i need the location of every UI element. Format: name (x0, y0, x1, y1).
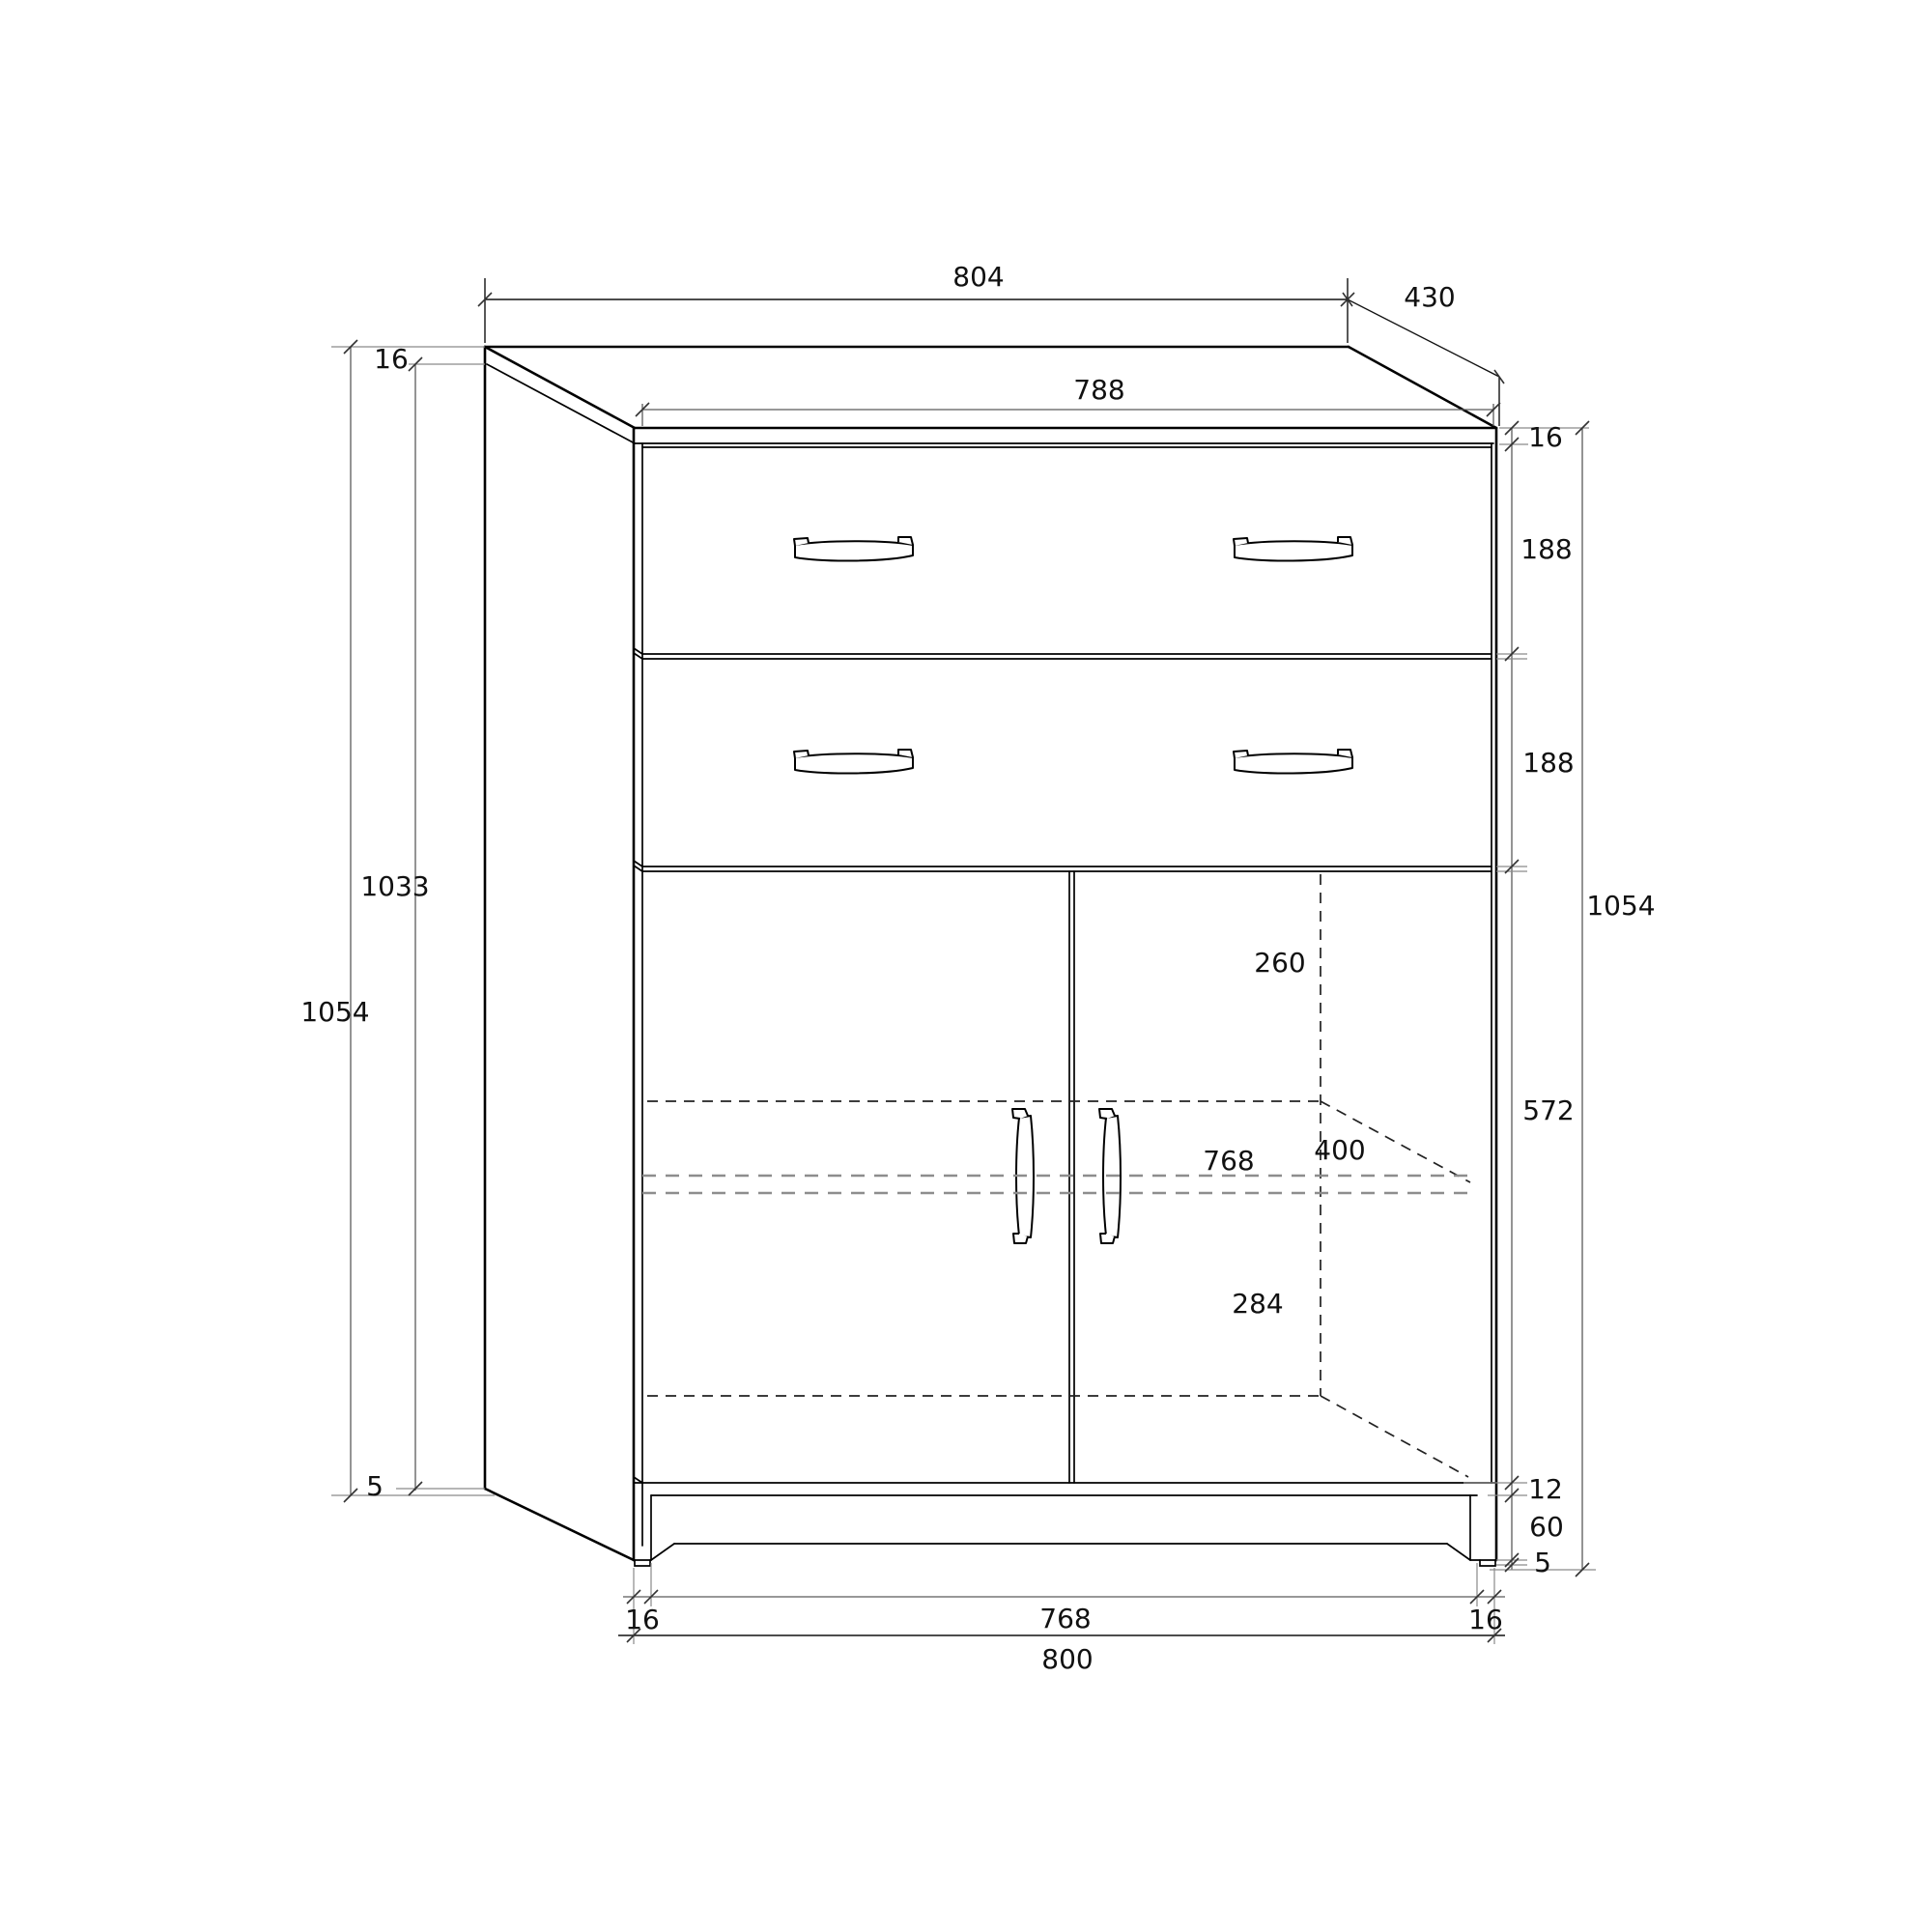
hidden-shelf-lines (642, 874, 1470, 1477)
dim-label-base-width: 800 (1041, 1643, 1093, 1675)
dim-label-side-panel-height: 1033 (360, 870, 429, 902)
bottom-right-depth-edge (1321, 1396, 1468, 1477)
dim-label-glide-right: 5 (1534, 1547, 1551, 1578)
dim-label-side-thickness-bottom-left: 16 (625, 1604, 660, 1635)
dimension-lines (331, 278, 1596, 1644)
dim-label-interior-width-bottom: 768 (1039, 1603, 1091, 1634)
glide-front-left (635, 1560, 650, 1566)
dim-label-top-thickness-left: 16 (374, 343, 409, 375)
dim-label-door-section-height: 572 (1522, 1094, 1574, 1126)
dim-label-side-thickness-bottom-right: 16 (1468, 1604, 1503, 1635)
drawer1-right-handle (1234, 537, 1352, 561)
dim-label-space-above-shelf: 260 (1254, 947, 1305, 979)
dim-label-depth: 430 (1404, 281, 1455, 313)
dim-label-drawer2-height: 188 (1522, 747, 1574, 779)
cabinet-technical-drawing: 804 430 788 16 188 188 1054 572 12 60 5 … (0, 0, 1932, 1932)
dim-label-drawer1-height: 188 (1520, 533, 1572, 565)
handles (794, 537, 1352, 1243)
top-panel-left-depth-edge (485, 347, 635, 428)
dim-label-top-thickness-right: 16 (1528, 421, 1563, 453)
drawer-divider-1 (634, 648, 1492, 659)
drawer2-right-handle (1234, 750, 1352, 774)
doors-bottom-left-connector (634, 1477, 642, 1483)
top-panel-right-depth-edge (1349, 347, 1496, 428)
side-panel-bottom-edge (485, 1489, 634, 1560)
drawer-divider-2 (634, 861, 1492, 871)
dim-label-space-below-shelf: 284 (1232, 1288, 1283, 1320)
dim-label-height-right: 1054 (1586, 890, 1655, 922)
drawing-page: 804 430 788 16 188 188 1054 572 12 60 5 … (0, 0, 1932, 1932)
drawer2-left-handle (794, 750, 913, 774)
dim-label-glide-left: 5 (366, 1470, 384, 1502)
dimension-end-marks (344, 293, 1589, 1642)
plinth (634, 1495, 1496, 1560)
dim-label-shelf-depth: 400 (1314, 1134, 1365, 1166)
dim-label-front-inner-width: 788 (1073, 374, 1124, 406)
dim-label-bottom-panel: 12 (1528, 1473, 1563, 1505)
drawer1-left-handle (794, 537, 913, 561)
cabinet-outline (485, 347, 1496, 1566)
dim-label-height-left: 1054 (300, 996, 369, 1028)
glide-front-right (1480, 1560, 1495, 1566)
dim-label-plinth-height: 60 (1529, 1511, 1564, 1543)
top-panel-left-underside-edge (487, 364, 635, 443)
dimension-labels: 804 430 788 16 188 188 1054 572 12 60 5 … (300, 261, 1655, 1675)
dim-label-top-width: 804 (952, 261, 1004, 293)
dim-label-interior-width: 768 (1203, 1145, 1254, 1177)
